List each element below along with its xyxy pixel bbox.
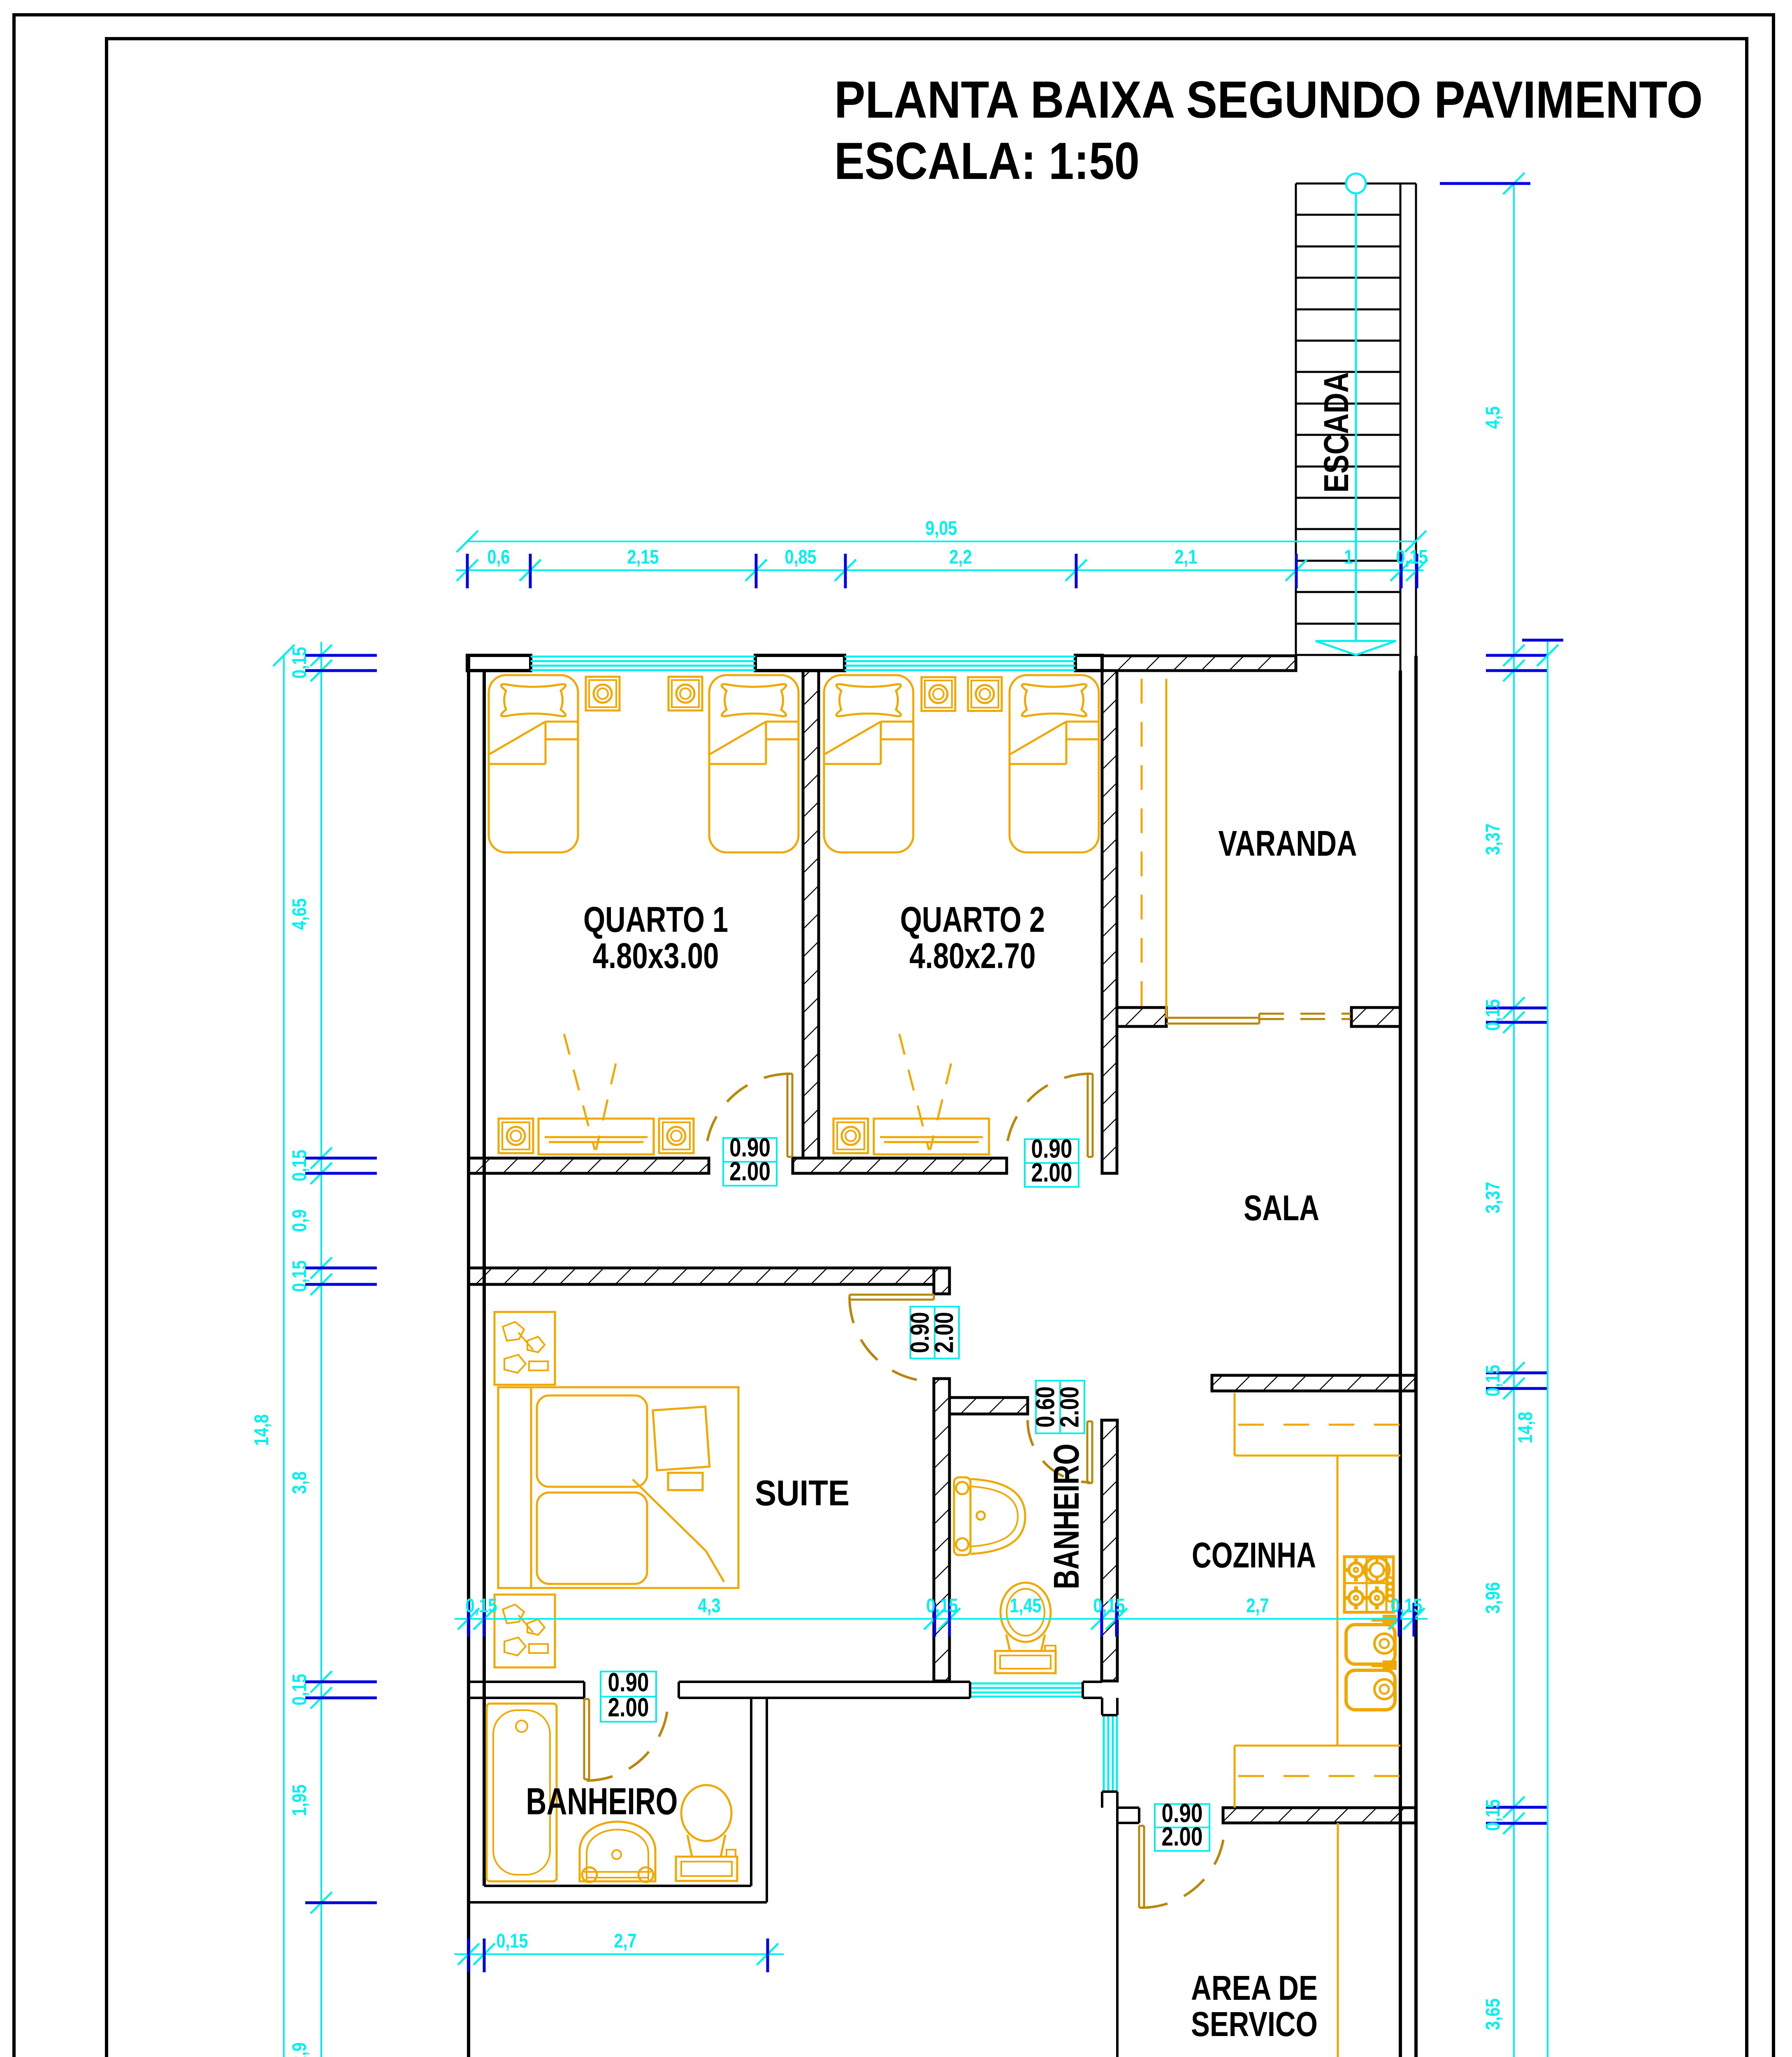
svg-text:4,5: 4,5 xyxy=(1482,406,1504,429)
svg-text:9,05: 9,05 xyxy=(926,518,957,539)
svg-text:2,7: 2,7 xyxy=(1247,1595,1269,1617)
svg-text:3,8: 3,8 xyxy=(289,1472,311,1494)
svg-text:0,15: 0,15 xyxy=(1093,1595,1125,1617)
svg-text:3,65: 3,65 xyxy=(1482,1999,1504,2030)
svg-text:4.80x3.00: 4.80x3.00 xyxy=(593,936,719,976)
svg-text:2,7: 2,7 xyxy=(614,1930,637,1952)
svg-text:4,65: 4,65 xyxy=(289,898,311,930)
svg-text:BANHEIRO: BANHEIRO xyxy=(526,1781,678,1823)
svg-text:4.80x2.70: 4.80x2.70 xyxy=(910,936,1036,976)
svg-text:COZINHA: COZINHA xyxy=(1192,1535,1316,1575)
svg-text:2,2: 2,2 xyxy=(949,546,972,568)
svg-text:1: 1 xyxy=(1344,546,1353,568)
svg-text:0,85: 0,85 xyxy=(785,546,817,568)
svg-text:14,8: 14,8 xyxy=(1515,1412,1537,1444)
svg-text:2.00: 2.00 xyxy=(608,1692,649,1722)
svg-text:4,3: 4,3 xyxy=(698,1595,721,1617)
svg-text:SALA: SALA xyxy=(1244,1188,1319,1228)
svg-text:0,15: 0,15 xyxy=(289,647,311,679)
svg-text:ESCADA: ESCADA xyxy=(1317,372,1356,493)
svg-text:QUARTO 1: QUARTO 1 xyxy=(583,900,728,940)
svg-text:BANHEIRO: BANHEIRO xyxy=(1047,1444,1086,1589)
svg-text:3,37: 3,37 xyxy=(1482,824,1504,855)
svg-text:3,37: 3,37 xyxy=(1482,1182,1504,1214)
svg-text:0,15: 0,15 xyxy=(1482,1365,1504,1397)
svg-text:2,15: 2,15 xyxy=(627,546,659,568)
svg-text:2.00: 2.00 xyxy=(1162,1822,1203,1851)
svg-text:14,8: 14,8 xyxy=(251,1414,273,1446)
svg-text:SUITE: SUITE xyxy=(755,1473,850,1513)
svg-text:SERVICO: SERVICO xyxy=(1191,2005,1318,2043)
svg-text:3,96: 3,96 xyxy=(1482,1582,1504,1614)
svg-text:0,15: 0,15 xyxy=(289,1261,311,1292)
svg-text:QUARTO 2: QUARTO 2 xyxy=(900,900,1045,940)
svg-text:1,45: 1,45 xyxy=(1010,1595,1042,1617)
svg-text:PLANTA BAIXA SEGUNDO PAVIMENTO: PLANTA BAIXA SEGUNDO PAVIMENTO xyxy=(834,70,1703,129)
svg-text:0,9: 0,9 xyxy=(289,1210,311,1232)
svg-text:AREA DE: AREA DE xyxy=(1191,1969,1318,2007)
svg-text:0,6: 0,6 xyxy=(487,546,510,568)
svg-text:0,15: 0,15 xyxy=(1482,1799,1504,1831)
svg-text:2.00: 2.00 xyxy=(1055,1386,1084,1428)
svg-text:0,15: 0,15 xyxy=(1482,999,1504,1031)
svg-text:0,15: 0,15 xyxy=(289,1150,311,1182)
svg-text:0,15: 0,15 xyxy=(1391,1595,1423,1617)
svg-text:0,15: 0,15 xyxy=(1396,546,1428,568)
svg-text:0,15: 0,15 xyxy=(289,1674,311,1706)
svg-text:2.00: 2.00 xyxy=(1031,1158,1072,1187)
svg-text:2.00: 2.00 xyxy=(929,1312,959,1353)
svg-text:2,1: 2,1 xyxy=(1175,546,1198,568)
svg-text:0,15: 0,15 xyxy=(466,1595,497,1617)
svg-text:1,95: 1,95 xyxy=(289,1785,311,1816)
svg-text:ESCALA: 1:50: ESCALA: 1:50 xyxy=(834,132,1140,190)
svg-text:2,9: 2,9 xyxy=(289,2043,311,2057)
svg-text:0,15: 0,15 xyxy=(497,1930,528,1952)
svg-text:VARANDA: VARANDA xyxy=(1219,824,1357,864)
svg-text:0,15: 0,15 xyxy=(926,1595,958,1617)
svg-text:2.00: 2.00 xyxy=(729,1156,771,1186)
